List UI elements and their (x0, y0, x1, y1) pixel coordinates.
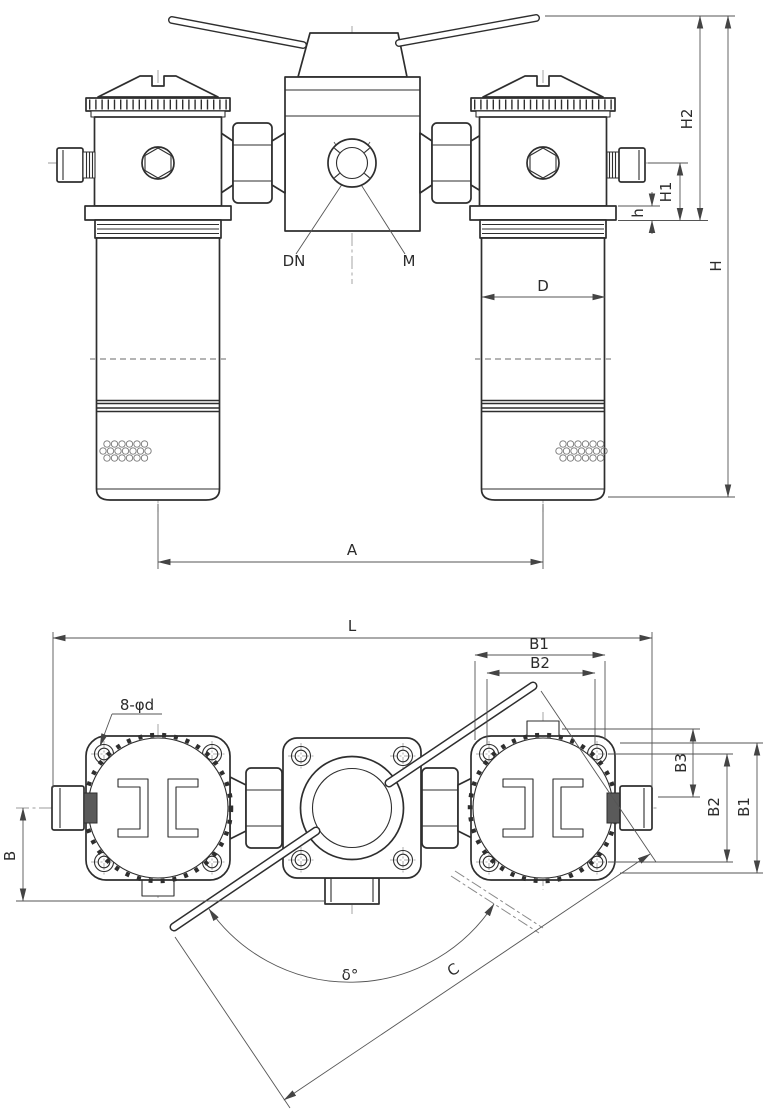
right-filter-tab (527, 721, 559, 737)
label-c: C (444, 959, 463, 980)
label-m: M (403, 252, 416, 270)
union-nut-left-front (221, 123, 285, 203)
label-h-total: H (707, 260, 725, 271)
label-b2-top: B2 (530, 654, 550, 672)
front-dimensions (158, 16, 735, 569)
label-a: A (347, 541, 358, 559)
front-view: DN M D A h H1 H2 H (48, 16, 735, 569)
label-bolt-note: 8-φd (120, 696, 154, 714)
technical-drawing-page: DN M D A h H1 H2 H (0, 0, 774, 1117)
label-h1: H1 (657, 182, 675, 203)
handle-rod-right (399, 18, 536, 43)
union-nut-left-bottom (230, 768, 282, 848)
label-d: D (537, 277, 549, 295)
selector-valve-bottom (283, 738, 421, 904)
label-h2: H2 (678, 109, 696, 130)
label-h-small: h (629, 208, 647, 218)
left-filter-bottom (85, 735, 231, 881)
label-b1-top: B1 (529, 635, 549, 653)
label-dn: DN (283, 252, 306, 270)
label-b: B (1, 851, 19, 861)
left-filter-tab (142, 880, 174, 896)
right-port-fitting-front (607, 148, 645, 182)
label-b3: B3 (672, 753, 690, 773)
left-port-fitting-front (57, 148, 95, 182)
right-filter-bottom (470, 735, 616, 881)
left-filter-front (85, 76, 231, 500)
label-b1-right: B1 (735, 797, 753, 817)
left-port-fitting-bottom (52, 786, 97, 830)
label-l: L (348, 617, 357, 635)
selector-valve-front (285, 33, 420, 231)
label-b2-right: B2 (705, 797, 723, 817)
valve-top-cap (298, 33, 407, 77)
label-delta: δ° (342, 966, 359, 984)
bottom-view: L B1 B2 8-φd B3 B2 B1 B δ° C (1, 617, 763, 1108)
handle-rod-left (172, 20, 303, 45)
valve-mount-tab (325, 878, 379, 904)
phantom-handle-line (451, 876, 539, 933)
duplex-filter-drawing: DN M D A h H1 H2 H (0, 0, 774, 1117)
union-nut-right-front (420, 123, 484, 203)
union-nut-right-bottom (422, 768, 474, 848)
